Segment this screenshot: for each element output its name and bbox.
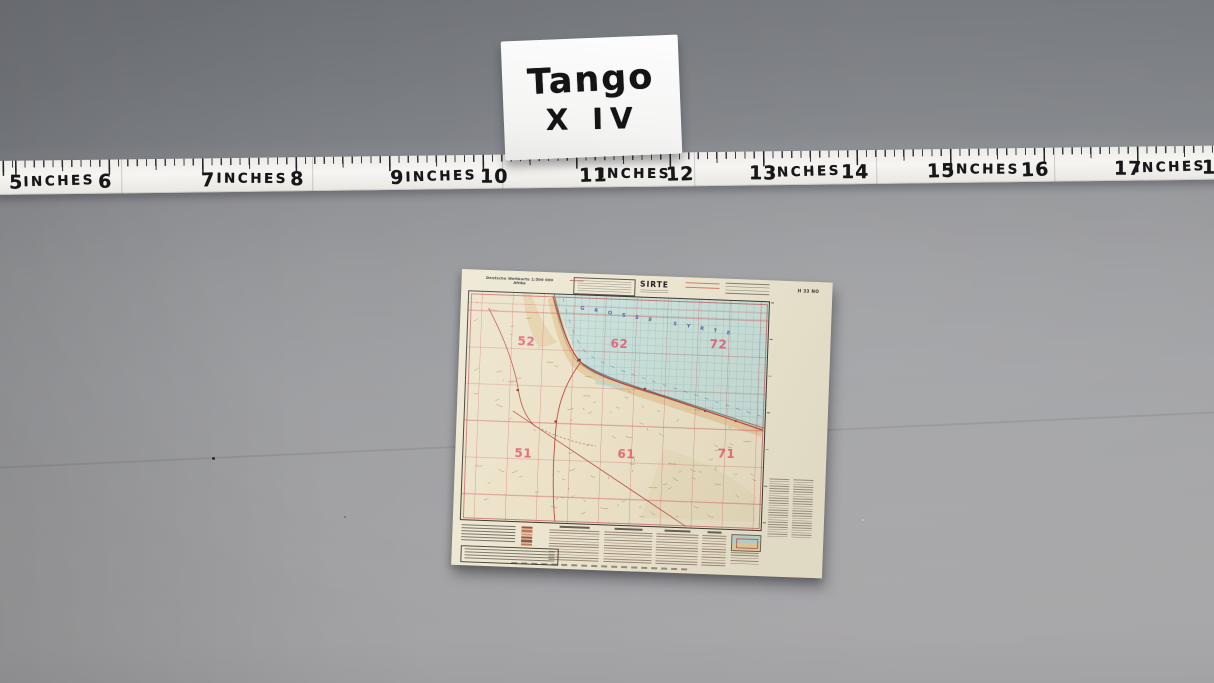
- tape-seam: [1054, 148, 1055, 182]
- ruler-unit-label: INCHES: [405, 167, 477, 185]
- legend-column: [655, 529, 698, 568]
- grid-zone-number: 52: [517, 334, 535, 349]
- ruler-unit-label: INCHES: [216, 171, 288, 187]
- map-title: SIRTE: [631, 279, 677, 290]
- tape-seam: [121, 159, 122, 193]
- tape-seam: [312, 157, 313, 191]
- label-card: Tango X IV: [501, 34, 683, 160]
- map-header-red-note: [685, 282, 719, 292]
- grid-zone-number: 61: [617, 447, 635, 462]
- card-numeral-text: X IV: [545, 100, 639, 136]
- grid-zone-number: 51: [514, 446, 532, 461]
- tape-seam: [694, 152, 695, 186]
- legend-color-swatches: [521, 526, 533, 545]
- card-title-text: Tango: [526, 56, 655, 102]
- dust-speck: [344, 516, 346, 518]
- ruler-unit-label: INCHES: [23, 172, 95, 190]
- ruler-inch-number: 18: [1202, 157, 1214, 179]
- map-sheet: Deutsche Weltkarte 1:500 000 Afrika SIRT…: [451, 269, 833, 578]
- ruler-inch-number: 5: [9, 172, 23, 194]
- ruler-inch-number: 16: [1021, 158, 1050, 181]
- grid-zone-number: 72: [709, 337, 727, 352]
- photo-scene: 5INCHES67INCHES89INCHES1011INCHES1213INC…: [0, 0, 1214, 683]
- tape-seam: [876, 150, 877, 184]
- ruler-unit-label: INCHES: [769, 163, 841, 181]
- ruler-inch-number: 9: [390, 167, 404, 189]
- legend-left-text: [461, 524, 516, 544]
- legend-column: [603, 527, 652, 566]
- legend-index-notes: [730, 552, 758, 566]
- margin-notes: [767, 478, 813, 538]
- map-sheet-code: H 33 NO: [791, 288, 825, 294]
- legend-column: [701, 531, 726, 569]
- ruler-inch-number: 8: [290, 168, 305, 190]
- map-area: GROSSE SYRTE 526272516171: [460, 290, 770, 531]
- grid-zone-number: 62: [610, 336, 628, 351]
- map-title-block: SIRTE: [631, 279, 677, 294]
- map-series-note: Deutsche Weltkarte 1:500 000 Afrika: [471, 275, 567, 287]
- ruler-inch-number: 7: [201, 169, 216, 191]
- dust-speck: [212, 457, 215, 460]
- grid-zone-number: 71: [717, 446, 735, 461]
- grid-zone-numbers: 526272516171: [461, 291, 769, 530]
- ruler-unit-label: INCHES: [1134, 158, 1206, 176]
- map-sheet-face: Deutsche Weltkarte 1:500 000 Afrika SIRT…: [451, 269, 833, 578]
- ruler-unit-label: INCHES: [948, 161, 1020, 177]
- ruler-inch-number: 10: [480, 166, 509, 188]
- ruler-inch-number: 14: [841, 161, 870, 183]
- map-title-subline: [640, 290, 668, 294]
- dust-speck: [862, 519, 864, 521]
- ruler-unit-label: INCHES: [599, 166, 671, 182]
- ruler-inch-number: 6: [98, 171, 112, 193]
- ruler-inch-number: 12: [666, 163, 695, 186]
- tape-seam: [502, 155, 503, 189]
- legend-column: [548, 525, 599, 564]
- legend-index-map: [731, 534, 762, 552]
- map-header-info: [725, 283, 769, 296]
